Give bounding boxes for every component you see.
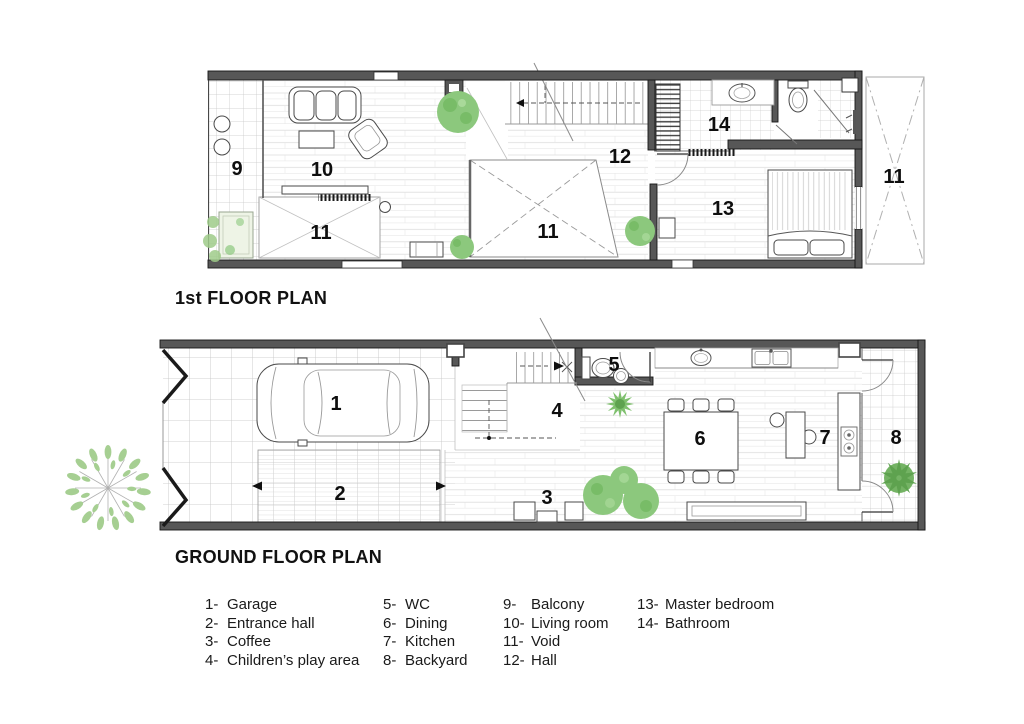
column (380, 202, 391, 213)
void-railing-hatch (318, 194, 372, 201)
legend-item: 4-Children’s play area (205, 652, 359, 671)
room-label-void-center: 11 (537, 221, 558, 243)
balcony-planter-pot (214, 139, 230, 155)
room-label-hall: 12 (609, 146, 631, 168)
bench (410, 242, 443, 257)
dining-chair (718, 399, 734, 411)
legend-item: 6-Dining (383, 615, 468, 634)
wash-basin (691, 351, 711, 366)
top-wall-niche (839, 343, 860, 357)
coffee-table (299, 131, 334, 148)
legend-item: 1-Garage (205, 596, 359, 615)
legend-item: 10-Living room (503, 615, 609, 634)
room-label-backyard: 8 (890, 427, 901, 449)
room-label-garage: 1 (330, 393, 341, 415)
room-label-void-right: 11 (883, 166, 904, 188)
bottom-wall-box (672, 260, 693, 268)
legend-column-1: 1-Garage 2-Entrance hall 3-Coffee 4-Chil… (205, 596, 359, 670)
car (257, 358, 429, 446)
bar-stool (770, 413, 784, 427)
coffee-stool (514, 502, 535, 520)
legend-item: 2-Entrance hall (205, 615, 359, 634)
cooktop (841, 427, 857, 456)
tv-console (282, 186, 368, 194)
legend-item: 9-Balcony (503, 596, 609, 615)
legend-item: 13-Master bedroom (637, 596, 774, 615)
legend-item: 14-Bathroom (637, 615, 774, 634)
room-label-play-area: 4 (551, 400, 563, 422)
plant (625, 216, 655, 246)
room-label-master-bedroom: 13 (712, 198, 734, 220)
room-label-kitchen: 7 (819, 427, 830, 449)
floor-plan-sheet: 9 10 11 11 11 12 13 14 (0, 0, 1024, 724)
street-tree (65, 445, 151, 531)
top-wall-niche (447, 344, 464, 357)
dining-chair (718, 471, 734, 483)
legend: 1-Garage 2-Entrance hall 3-Coffee 4-Chil… (0, 0, 1024, 120)
dining-chair (668, 471, 684, 483)
plant (450, 235, 474, 259)
bottom-wall-opening (342, 261, 402, 268)
kitchen-island (838, 393, 860, 490)
legend-item: 7-Kitchen (383, 633, 468, 652)
first-floor-title: 1st FLOOR PLAN (175, 288, 327, 309)
room-label-void-left: 11 (310, 222, 331, 244)
kitchen-counter (655, 348, 838, 368)
bed (768, 170, 852, 258)
legend-column-3: 9-Balcony 10-Living room 11-Void 12-Hall (503, 596, 609, 670)
entrance-deck (258, 450, 440, 522)
bathroom-threshold-hatch (688, 149, 736, 156)
coffee-stool (565, 502, 583, 520)
balcony-planter-box (203, 212, 253, 262)
legend-item: 3-Coffee (205, 633, 359, 652)
room-label-entrance-hall: 2 (334, 483, 345, 505)
room-label-living-room: 10 (311, 159, 333, 181)
car-mirror (298, 358, 307, 364)
ground-floor-plan: 1 2 3 4 5 6 7 8 (65, 318, 925, 531)
car-mirror (298, 440, 307, 446)
room-label-wc: 5 (608, 354, 619, 376)
bedroom-chair (659, 218, 675, 238)
kitchen-sink (752, 349, 791, 367)
dining-chair (668, 399, 684, 411)
pillow (774, 240, 808, 255)
room-label-coffee: 3 (541, 487, 552, 509)
legend-item: 11-Void (503, 633, 609, 652)
bedroom-window (855, 187, 862, 229)
coffee-table-low (537, 511, 557, 522)
legend-item: 8-Backyard (383, 652, 468, 671)
room-label-balcony: 9 (231, 158, 242, 180)
bench (687, 502, 806, 520)
legend-column-2: 5-WC 6-Dining 7-Kitchen 8-Backyard (383, 596, 468, 670)
legend-column-4: 13-Master bedroom 14-Bathroom (637, 596, 774, 633)
dining-chair (693, 471, 709, 483)
pillow (810, 240, 844, 255)
legend-item: 5-WC (383, 596, 468, 615)
room-label-dining: 6 (694, 428, 705, 450)
ground-floor-title: GROUND FLOOR PLAN (175, 547, 382, 568)
legend-item: 12-Hall (503, 652, 609, 671)
dining-chair (693, 399, 709, 411)
